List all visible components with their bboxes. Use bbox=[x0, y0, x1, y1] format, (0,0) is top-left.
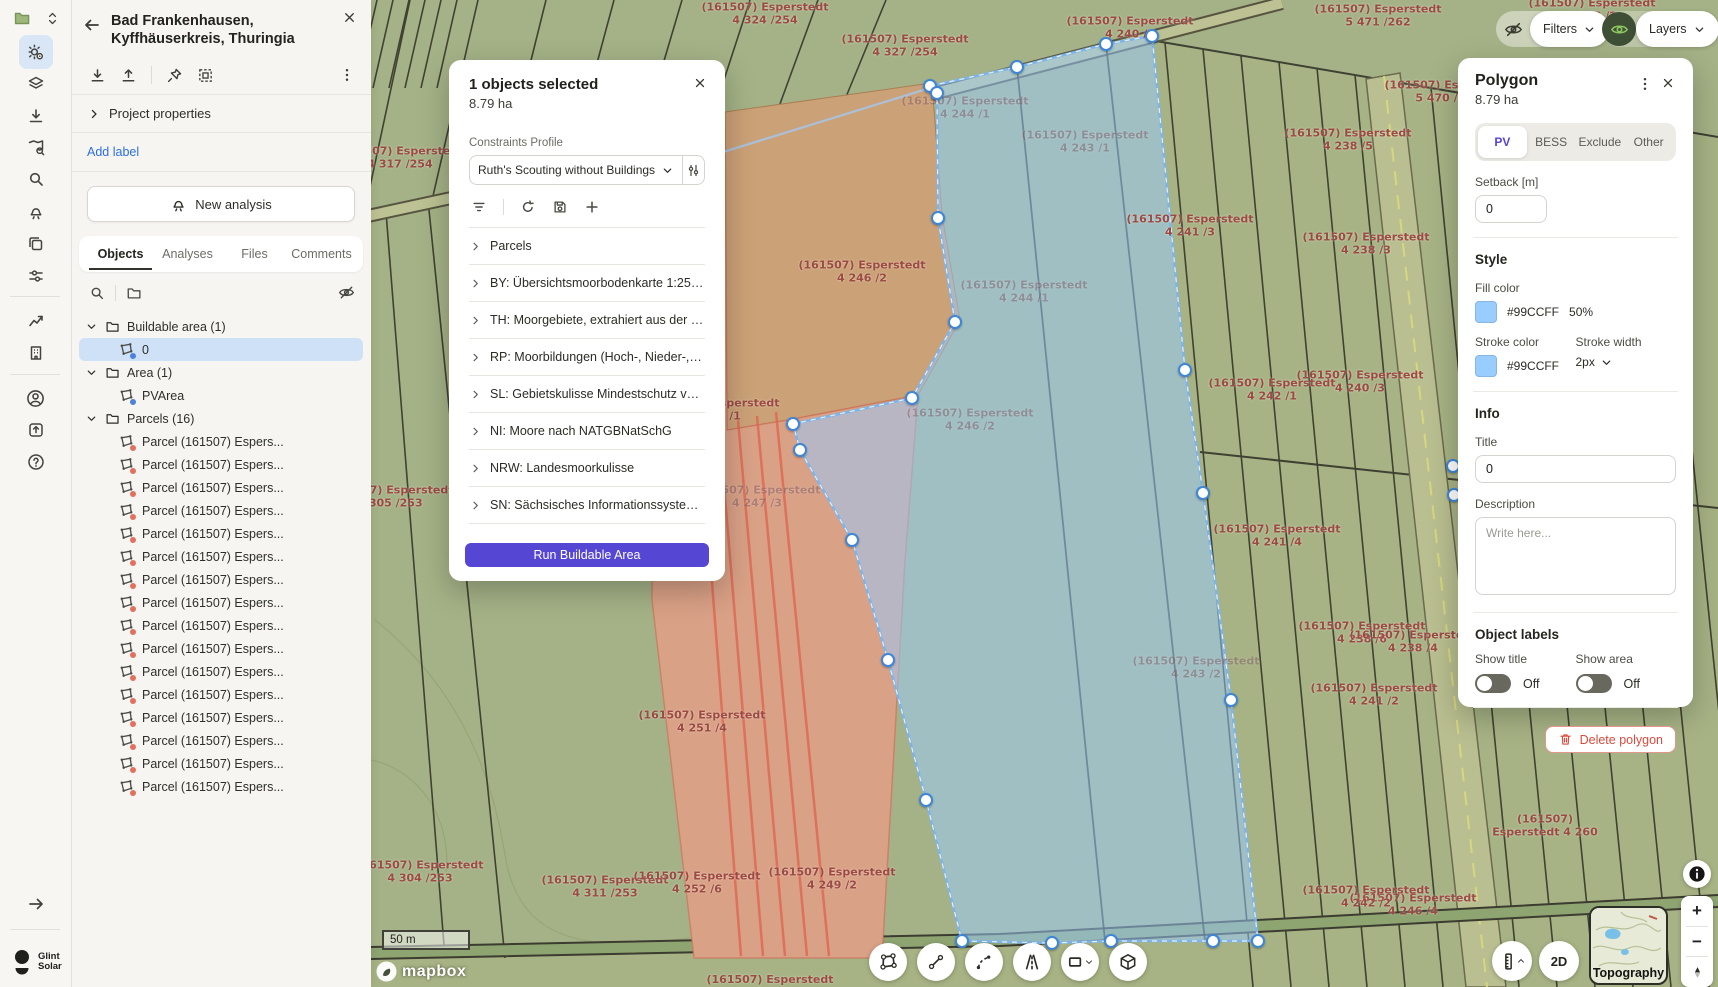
polygon-vertex-handle[interactable] bbox=[1145, 29, 1159, 43]
constraint-layer-row[interactable]: TH: Moorgebiete, extrahiert aus der Bo..… bbox=[469, 302, 705, 339]
stroke-color-hex: #99CCFF bbox=[1507, 359, 1559, 373]
profile-dropdown[interactable]: Ruth's Scouting without Buildings bbox=[470, 156, 682, 184]
tab-other[interactable]: Other bbox=[1624, 126, 1673, 158]
tree-item-parcel[interactable]: Parcel (161507) Espers... bbox=[79, 453, 363, 476]
polygon-vertex-handle[interactable] bbox=[1099, 37, 1113, 51]
chevron-right-icon bbox=[469, 314, 482, 327]
map-search-icon[interactable] bbox=[19, 130, 53, 164]
compass-reset-button[interactable] bbox=[1681, 957, 1713, 987]
chevron-down-icon bbox=[85, 366, 98, 379]
constraint-layer-row[interactable]: SL: Gebietskulisse Mindestschutz von F..… bbox=[469, 376, 705, 413]
polygon-node-icon bbox=[118, 709, 135, 726]
chevron-down-icon bbox=[661, 164, 674, 177]
preferences-sliders-icon[interactable] bbox=[19, 259, 53, 293]
tab-objects[interactable]: Objects bbox=[89, 238, 152, 270]
tree-item-buildable-0[interactable]: 0 bbox=[79, 338, 363, 361]
polygon-node-icon bbox=[118, 548, 135, 565]
chevron-right-icon bbox=[469, 351, 482, 364]
filter-icon[interactable] bbox=[471, 199, 487, 215]
mapbox-logo-icon bbox=[376, 961, 397, 982]
search-icon[interactable] bbox=[89, 285, 105, 301]
workspace-folder-icon[interactable] bbox=[10, 6, 34, 30]
undo-icon[interactable] bbox=[520, 199, 536, 215]
polygon-node-icon bbox=[118, 433, 135, 450]
title-input[interactable] bbox=[1475, 455, 1676, 483]
selection-dialog: 1 objects selected 8.79 ha Constraints P… bbox=[449, 60, 725, 581]
polygon-node-icon bbox=[118, 755, 135, 772]
tab-analyses[interactable]: Analyses bbox=[156, 238, 219, 270]
layers-tool-icon[interactable] bbox=[19, 67, 53, 101]
polygon-vertex-handle[interactable] bbox=[1251, 934, 1265, 948]
fill-opacity-value[interactable]: 50% bbox=[1569, 305, 1593, 319]
description-textarea[interactable] bbox=[1475, 517, 1676, 595]
show-area-label: Show area bbox=[1576, 652, 1677, 666]
zoom-out-button[interactable]: − bbox=[1681, 927, 1713, 957]
2d-mode-button[interactable]: 2D bbox=[1539, 941, 1579, 981]
polygon-vertex-handle[interactable] bbox=[955, 934, 969, 948]
draw-curve-tool[interactable] bbox=[965, 943, 1003, 981]
polygon-node-icon bbox=[118, 617, 135, 634]
tree-folder-buildable-area[interactable]: Buildable area (1) bbox=[79, 315, 363, 338]
selection-title: 1 objects selected bbox=[469, 76, 705, 93]
show-title-toggle[interactable] bbox=[1475, 674, 1511, 693]
polygon-node-icon bbox=[118, 571, 135, 588]
download-icon[interactable] bbox=[89, 67, 106, 84]
icon-sidebar: GlintSolar bbox=[0, 0, 72, 987]
constraint-layer-row[interactable]: SN: Sächsisches Informationssystem für..… bbox=[469, 487, 705, 524]
save-icon[interactable] bbox=[552, 199, 568, 215]
objects-tree: Buildable area (1) 0 Area (1) PVArea Par bbox=[71, 309, 371, 804]
download-tool-icon[interactable] bbox=[19, 99, 53, 133]
constraint-layer-list: ParcelsBY: Übersichtsmoorbodenkarte 1:25… bbox=[469, 227, 705, 524]
workspace-switcher-icon[interactable] bbox=[42, 8, 62, 28]
trend-chart-icon[interactable] bbox=[19, 304, 53, 338]
analysis-lamp-icon[interactable] bbox=[19, 195, 53, 229]
polygon-node-icon bbox=[118, 594, 135, 611]
close-dialog-icon[interactable] bbox=[689, 72, 711, 94]
project-panel: Bad Frankenhausen, Kyffhäuserkreis, Thur… bbox=[71, 0, 371, 987]
layers-button[interactable]: Layers bbox=[1636, 11, 1718, 47]
polygon-vertex-handle[interactable] bbox=[930, 86, 944, 100]
folder-icon bbox=[105, 365, 120, 380]
add-label-link[interactable]: Add label bbox=[71, 133, 371, 172]
polygon-node-icon bbox=[118, 663, 135, 680]
constraint-layer-row[interactable]: NRW: Landesmoorkulisse bbox=[469, 450, 705, 487]
filters-control: Filters bbox=[1496, 11, 1609, 47]
fill-color-swatch[interactable] bbox=[1475, 301, 1497, 323]
tree-item-pvarea[interactable]: PVArea bbox=[79, 384, 363, 407]
chevron-right-icon bbox=[469, 425, 482, 438]
sidebar-divider bbox=[10, 296, 60, 297]
chevron-right-icon bbox=[469, 499, 482, 512]
selection-area: 8.79 ha bbox=[469, 96, 705, 111]
tree-item-parcel[interactable]: Parcel (161507) Espers... bbox=[79, 545, 363, 568]
polygon-vertex-handle[interactable] bbox=[905, 391, 919, 405]
info-button[interactable] bbox=[1683, 860, 1711, 888]
layers-visibility-eye-icon[interactable] bbox=[1602, 12, 1636, 46]
draw-line-tool[interactable] bbox=[917, 943, 955, 981]
constraint-layer-row[interactable]: NI: Moore nach NATGBNatSchG bbox=[469, 413, 705, 450]
search-tool-icon[interactable] bbox=[19, 162, 53, 196]
polygon-vertex-handle[interactable] bbox=[1224, 693, 1238, 707]
polygon-vertex-handle[interactable] bbox=[1206, 934, 1220, 948]
more-options-icon[interactable] bbox=[339, 67, 355, 83]
style-heading: Style bbox=[1475, 252, 1676, 267]
analysis-lamp-icon bbox=[170, 196, 187, 213]
polygon-vertex-handle[interactable] bbox=[919, 793, 933, 807]
new-analysis-button[interactable]: New analysis bbox=[87, 186, 355, 222]
info-heading: Info bbox=[1475, 406, 1676, 421]
title-label: Title bbox=[1475, 435, 1676, 449]
polygon-node-icon bbox=[118, 686, 135, 703]
frame-select-icon[interactable] bbox=[197, 67, 214, 84]
polygon-node-icon bbox=[118, 479, 135, 496]
profile-settings-icon[interactable] bbox=[682, 156, 704, 184]
chevron-right-icon bbox=[469, 240, 482, 253]
company-building-icon[interactable] bbox=[19, 336, 53, 370]
basemap-label: Topography bbox=[1591, 966, 1666, 980]
tree-item-parcel[interactable]: Parcel (161507) Espers... bbox=[79, 568, 363, 591]
tree-item-parcel[interactable]: Parcel (161507) Espers... bbox=[79, 683, 363, 706]
chevron-right-icon bbox=[469, 388, 482, 401]
tree-item-parcel[interactable]: Parcel (161507) Espers... bbox=[79, 430, 363, 453]
stroke-color-label: Stroke color bbox=[1475, 335, 1576, 349]
chevron-down-icon bbox=[85, 320, 98, 333]
draw-road-tool[interactable] bbox=[1013, 943, 1051, 981]
polygon-node-icon bbox=[118, 456, 135, 473]
chevron-right-icon bbox=[469, 277, 482, 290]
draw-polygon-tool[interactable] bbox=[869, 943, 907, 981]
filters-button[interactable]: Filters bbox=[1530, 11, 1609, 47]
more-options-icon[interactable] bbox=[1637, 76, 1653, 92]
polygon-type-tabs: PV BESS Exclude Other bbox=[1475, 123, 1676, 161]
stroke-color-swatch[interactable] bbox=[1475, 355, 1497, 377]
chevron-down-icon bbox=[1693, 23, 1706, 36]
chevron-down-icon bbox=[85, 412, 98, 425]
show-area-toggle[interactable] bbox=[1576, 674, 1612, 693]
polygon-vertex-handle[interactable] bbox=[1010, 60, 1024, 74]
tree-item-parcel[interactable]: Parcel (161507) Espers... bbox=[79, 614, 363, 637]
tree-item-parcel[interactable]: Parcel (161507) Espers... bbox=[79, 706, 363, 729]
tree-item-parcel[interactable]: Parcel (161507) Espers... bbox=[79, 476, 363, 499]
polygon-panel: Polygon 8.79 ha PV BESS Exclude Other Se… bbox=[1458, 58, 1693, 707]
user-account-icon[interactable] bbox=[19, 381, 53, 415]
fill-color-hex: #99CCFF bbox=[1507, 305, 1559, 319]
stroke-width-dropdown[interactable]: 2px bbox=[1576, 355, 1677, 369]
tree-item-parcel[interactable]: Parcel (161507) Espers... bbox=[79, 499, 363, 522]
polygon-vertex-handle[interactable] bbox=[881, 653, 895, 667]
measure-tool-button[interactable] bbox=[1492, 941, 1532, 981]
upload-icon[interactable] bbox=[120, 67, 137, 84]
run-buildable-area-button[interactable]: Run Buildable Area bbox=[465, 543, 709, 567]
chevron-down-icon bbox=[1600, 356, 1613, 369]
history-icon[interactable] bbox=[19, 227, 53, 261]
tree-item-parcel[interactable]: Parcel (161507) Espers... bbox=[79, 660, 363, 683]
pin-icon[interactable] bbox=[166, 67, 183, 84]
close-panel-icon[interactable] bbox=[338, 6, 361, 29]
object-labels-heading: Object labels bbox=[1475, 627, 1676, 642]
back-arrow-icon[interactable] bbox=[83, 16, 101, 34]
map-scale-bar: 50 m bbox=[382, 930, 470, 950]
scouting-tool-icon[interactable] bbox=[19, 35, 53, 69]
layers-control: Layers bbox=[1602, 11, 1718, 47]
tab-bess[interactable]: BESS bbox=[1527, 126, 1576, 158]
sidebar-divider bbox=[10, 374, 60, 375]
description-label: Description bbox=[1475, 497, 1676, 511]
export-box-icon[interactable] bbox=[19, 413, 53, 447]
draw-rectangle-tool[interactable] bbox=[1061, 943, 1099, 981]
app-screen: (161507) Esperstedt4 324 /254(161507) Es… bbox=[0, 0, 1718, 987]
chevron-right-icon bbox=[87, 107, 101, 121]
zoom-in-button[interactable]: + bbox=[1681, 896, 1713, 926]
filters-visibility-eye-off-icon[interactable] bbox=[1496, 12, 1530, 46]
polygon-node-icon bbox=[118, 341, 135, 358]
basemap-switcher[interactable]: Topography bbox=[1589, 906, 1668, 985]
chevron-down-icon bbox=[1084, 957, 1094, 967]
polygon-vertex-handle[interactable] bbox=[793, 443, 807, 457]
tab-comments[interactable]: Comments bbox=[290, 238, 353, 270]
collapse-arrow-icon[interactable] bbox=[19, 887, 53, 921]
search-divider bbox=[115, 285, 116, 301]
tree-item-parcel[interactable]: Parcel (161507) Espers... bbox=[79, 522, 363, 545]
setback-input[interactable] bbox=[1475, 195, 1547, 223]
tree-item-parcel[interactable]: Parcel (161507) Espers... bbox=[79, 591, 363, 614]
show-area-state: Off bbox=[1624, 677, 1640, 691]
folder-icon bbox=[105, 319, 120, 334]
polygon-node-icon bbox=[118, 732, 135, 749]
chevron-down-icon bbox=[1583, 23, 1596, 36]
project-properties-row[interactable]: Project properties bbox=[71, 95, 371, 133]
close-panel-icon[interactable] bbox=[1657, 72, 1679, 94]
add-icon[interactable] bbox=[584, 199, 600, 215]
tree-item-parcel[interactable]: Parcel (161507) Espers... bbox=[79, 752, 363, 775]
constraint-layer-row[interactable]: BY: Übersichtsmoorbodenkarte 1:25.000 bbox=[469, 265, 705, 302]
tree-item-parcel[interactable]: Parcel (161507) Espers... bbox=[79, 775, 363, 798]
polygon-vertex-handle[interactable] bbox=[1196, 486, 1210, 500]
constraints-profile-select: Ruth's Scouting without Buildings bbox=[469, 155, 705, 185]
fill-color-label: Fill color bbox=[1475, 281, 1676, 295]
tab-pv[interactable]: PV bbox=[1478, 126, 1527, 158]
polygon-node-icon bbox=[118, 640, 135, 657]
help-icon[interactable] bbox=[19, 445, 53, 479]
toolbar-divider bbox=[503, 199, 504, 215]
mapbox-attribution[interactable]: mapbox bbox=[376, 961, 466, 982]
polygon-vertex-handle[interactable] bbox=[1178, 363, 1192, 377]
setback-label: Setback [m] bbox=[1475, 175, 1676, 189]
polygon-node-icon bbox=[118, 778, 135, 795]
3d-extrude-tool[interactable] bbox=[1109, 943, 1147, 981]
polygon-node-icon bbox=[118, 502, 135, 519]
tree-item-parcel[interactable]: Parcel (161507) Espers... bbox=[79, 729, 363, 752]
glint-solar-logo: GlintSolar bbox=[12, 949, 62, 975]
polygon-vertex-handle[interactable] bbox=[1045, 936, 1059, 950]
chevron-right-icon bbox=[469, 462, 482, 475]
delete-polygon-button[interactable]: Delete polygon bbox=[1545, 726, 1676, 753]
zoom-control: + − bbox=[1681, 896, 1713, 987]
sidebar-divider bbox=[10, 929, 60, 930]
show-title-state: Off bbox=[1523, 677, 1539, 691]
polygon-vertex-handle[interactable] bbox=[931, 211, 945, 225]
constraints-profile-label: Constraints Profile bbox=[469, 137, 705, 149]
polygon-vertex-handle[interactable] bbox=[845, 533, 859, 547]
chevron-up-icon bbox=[1516, 956, 1526, 966]
constraint-layer-row[interactable]: Parcels bbox=[469, 228, 705, 265]
group-folder-icon[interactable] bbox=[126, 285, 142, 301]
tab-files[interactable]: Files bbox=[223, 238, 286, 270]
folder-icon bbox=[105, 411, 120, 426]
tree-folder-area[interactable]: Area (1) bbox=[79, 361, 363, 384]
project-title: Bad Frankenhausen, Kyffhäuserkreis, Thur… bbox=[111, 12, 355, 48]
polygon-vertex-handle[interactable] bbox=[786, 417, 800, 431]
tree-folder-parcels[interactable]: Parcels (16) bbox=[79, 407, 363, 430]
tree-item-parcel[interactable]: Parcel (161507) Espers... bbox=[79, 637, 363, 660]
panel-tabs: Objects Analyses Files Comments bbox=[79, 236, 363, 272]
polygon-area: 8.79 ha bbox=[1475, 92, 1676, 107]
hide-all-eye-off-icon[interactable] bbox=[338, 284, 355, 301]
toolbar-divider bbox=[151, 66, 152, 84]
trash-icon bbox=[1558, 732, 1573, 747]
polygon-node-icon bbox=[118, 387, 135, 404]
constraint-layer-row[interactable]: RP: Moorbildungen (Hoch-, Nieder-, Üb... bbox=[469, 339, 705, 376]
show-title-label: Show title bbox=[1475, 652, 1576, 666]
polygon-vertex-handle[interactable] bbox=[948, 315, 962, 329]
tab-exclude[interactable]: Exclude bbox=[1576, 126, 1625, 158]
polygon-node-icon bbox=[118, 525, 135, 542]
stroke-width-label: Stroke width bbox=[1576, 335, 1677, 349]
